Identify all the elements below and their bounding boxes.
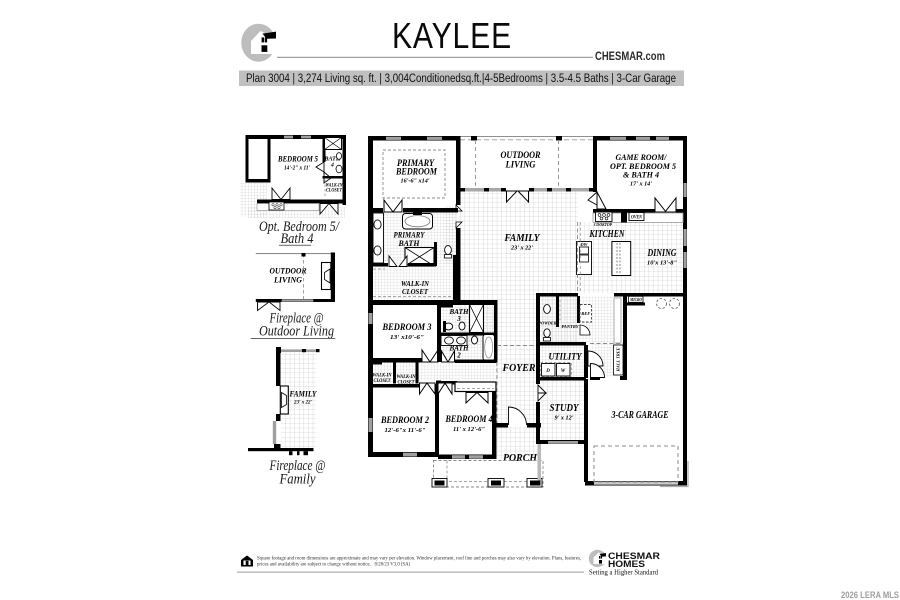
svg-text:17' x 14': 17' x 14' bbox=[630, 181, 652, 188]
svg-text:BEDROOM 4: BEDROOM 4 bbox=[445, 415, 493, 425]
svg-text:DINING: DINING bbox=[647, 248, 677, 259]
svg-text:BEDROOM 5: BEDROOM 5 bbox=[277, 154, 318, 164]
svg-text:3: 3 bbox=[456, 315, 461, 323]
svg-text:LIVING: LIVING bbox=[505, 160, 536, 170]
svg-text:OVEN: OVEN bbox=[631, 216, 642, 221]
svg-text:12'-6"x 11'-6": 12'-6"x 11'-6" bbox=[385, 427, 426, 434]
svg-text:23' x 22': 23' x 22' bbox=[510, 245, 533, 252]
svg-text:FAMILY: FAMILY bbox=[289, 389, 318, 399]
svg-text:PORCH: PORCH bbox=[503, 453, 538, 464]
svg-text:Plan 3004 | 3,274 Living sq. f: Plan 3004 | 3,274 Living sq. ft. | 3,004… bbox=[246, 71, 676, 85]
svg-text:prices and availability are su: prices and availability are subject to c… bbox=[257, 563, 411, 568]
svg-text:STUDY: STUDY bbox=[550, 403, 580, 414]
svg-text:HALL TREE: HALL TREE bbox=[616, 347, 621, 372]
svg-text:Bath 4: Bath 4 bbox=[281, 231, 314, 247]
svg-text:REF: REF bbox=[581, 311, 590, 316]
svg-text:DW: DW bbox=[580, 242, 588, 247]
svg-text:Outdoor Living: Outdoor Living bbox=[259, 324, 334, 340]
svg-text:CLOSET: CLOSET bbox=[402, 287, 428, 296]
svg-text:UTILITY: UTILITY bbox=[549, 353, 583, 363]
svg-text:10'x 13'-8": 10'x 13'-8" bbox=[647, 260, 677, 267]
svg-text:11' x 12'-6": 11' x 12'-6" bbox=[453, 426, 485, 433]
svg-text:9' x 12': 9' x 12' bbox=[555, 415, 574, 422]
svg-text:MICRO: MICRO bbox=[629, 297, 642, 302]
svg-text:PANTRY: PANTRY bbox=[562, 324, 580, 329]
svg-text:BEDROOM: BEDROOM bbox=[395, 167, 438, 177]
svg-text:CLOSET: CLOSET bbox=[326, 189, 343, 194]
svg-text:CHESMAR.com: CHESMAR.com bbox=[595, 51, 665, 63]
svg-text:KITCHEN: KITCHEN bbox=[589, 229, 625, 240]
svg-text:BEDROOM 2: BEDROOM 2 bbox=[380, 416, 429, 426]
svg-text:Square footage and room dimens: Square footage and room dimensions are a… bbox=[257, 557, 581, 562]
svg-text:FAMILY: FAMILY bbox=[504, 232, 541, 244]
svg-text:LIVING: LIVING bbox=[273, 275, 302, 285]
svg-text:FOYER: FOYER bbox=[502, 363, 536, 374]
svg-text:4: 4 bbox=[330, 163, 334, 169]
svg-text:14'-2" x 11': 14'-2" x 11' bbox=[284, 166, 310, 172]
svg-text:2026 LERA MLS: 2026 LERA MLS bbox=[841, 590, 899, 600]
svg-text:Family: Family bbox=[279, 472, 316, 488]
svg-text:D: D bbox=[545, 369, 550, 374]
svg-text:W: W bbox=[561, 369, 566, 374]
svg-text:3-CAR GARAGE: 3-CAR GARAGE bbox=[611, 410, 669, 421]
svg-text:KAYLEE: KAYLEE bbox=[392, 15, 512, 56]
svg-text:COOKTOP: COOKTOP bbox=[594, 222, 612, 227]
svg-text:16'-6" x14': 16'-6" x14' bbox=[401, 177, 430, 184]
svg-text:Setting a Higher Standard: Setting a Higher Standard bbox=[589, 569, 658, 577]
svg-text:CLOSET: CLOSET bbox=[374, 378, 392, 384]
svg-text:13' x10'-6": 13' x10'-6" bbox=[390, 334, 425, 341]
svg-text:POWDER: POWDER bbox=[539, 321, 557, 326]
svg-text:BEDROOM 3: BEDROOM 3 bbox=[382, 323, 432, 333]
svg-text:& BATH 4: & BATH 4 bbox=[623, 170, 660, 180]
svg-text:2: 2 bbox=[456, 352, 461, 360]
svg-text:OUTDOOR: OUTDOOR bbox=[501, 150, 541, 160]
svg-text:23' x 22': 23' x 22' bbox=[293, 400, 312, 406]
svg-text:BATH: BATH bbox=[398, 238, 420, 248]
